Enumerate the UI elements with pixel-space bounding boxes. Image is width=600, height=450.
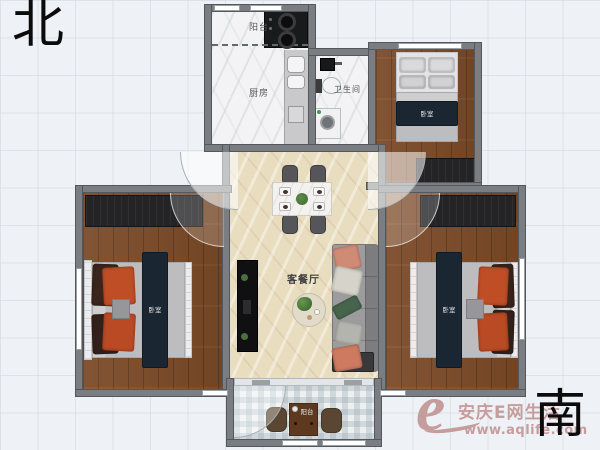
kitchen-cooktop-outline xyxy=(288,106,304,123)
wall xyxy=(308,48,376,56)
window xyxy=(380,390,406,396)
bed-runner: 卧室 xyxy=(396,101,458,126)
bed-tray xyxy=(466,299,484,319)
wall xyxy=(474,42,482,190)
dining-chair xyxy=(310,214,326,234)
table-plant xyxy=(296,193,308,205)
compass-north-label: 北 xyxy=(12,0,64,52)
coffee-table-cup xyxy=(314,309,320,315)
dinner-plate xyxy=(313,202,325,211)
kitchen-sink xyxy=(287,75,305,89)
console-plant xyxy=(241,333,248,340)
room-label-bathroom: 卫生间 xyxy=(334,84,361,95)
room-label-bedroom-west: 卧室 xyxy=(149,305,162,314)
wall xyxy=(374,378,382,447)
bed-headboard xyxy=(84,260,92,360)
bed-pillow xyxy=(428,75,455,89)
room-label-balcony-north: 阳台 xyxy=(249,20,269,33)
washing-machine-light xyxy=(317,110,321,114)
window xyxy=(250,5,282,11)
stove-burner xyxy=(278,13,296,31)
sofa-pillow-gray xyxy=(334,320,363,346)
floorplan-screenshot: { "compass": { "north": "北", "south": "南… xyxy=(0,0,600,450)
bathroom-sink xyxy=(320,58,335,71)
bed-pillow xyxy=(428,57,455,73)
bed-tray xyxy=(112,299,130,319)
wall xyxy=(204,4,212,152)
wall xyxy=(204,144,386,152)
bathroom-sink-arm xyxy=(335,62,342,65)
bed-footboard xyxy=(185,262,192,358)
balcony-table-knob xyxy=(310,422,313,425)
window xyxy=(202,390,228,396)
window xyxy=(322,440,366,446)
window xyxy=(214,5,240,11)
sofa-pillow-coral xyxy=(331,344,363,372)
washing-machine-door xyxy=(320,115,335,130)
dinner-plate xyxy=(279,187,291,196)
room-label-living-dining: 客餐厅 xyxy=(287,271,320,286)
stove-knob xyxy=(269,18,272,21)
window xyxy=(398,43,462,49)
wall xyxy=(308,4,316,152)
room-label-bedroom-southeast: 卧室 xyxy=(443,305,456,314)
coffee-table-cup xyxy=(307,315,312,320)
window xyxy=(282,440,318,446)
bed-footboard xyxy=(410,262,417,358)
balcony-table-knob xyxy=(294,422,297,425)
bed-runner: 卧室 xyxy=(142,252,168,368)
console-speaker xyxy=(243,300,251,314)
kitchen-sink xyxy=(287,56,305,73)
dinner-plate xyxy=(279,202,291,211)
bed-pillow xyxy=(399,75,426,89)
balcony-table-plate xyxy=(292,406,298,412)
window xyxy=(76,268,82,350)
dinner-plate xyxy=(313,187,325,196)
sliding-door-panel xyxy=(344,380,362,385)
window xyxy=(519,258,525,340)
bed-runner: 卧室 xyxy=(436,252,462,368)
sofa-pillow-beige xyxy=(331,265,364,296)
stove-burner xyxy=(278,31,296,49)
room-label-bedroom-northeast: 卧室 xyxy=(421,109,434,118)
room-label-kitchen: 厨房 xyxy=(249,86,269,99)
bed-pillow xyxy=(399,57,426,73)
room-label-balcony-south: 阳台 xyxy=(301,407,314,416)
console-plant xyxy=(241,274,248,281)
wall xyxy=(368,42,376,152)
sliding-door-panel xyxy=(252,380,270,385)
stove-knob xyxy=(269,27,272,30)
balcony-chair xyxy=(321,408,342,433)
compass-south-label: 南 xyxy=(534,390,586,442)
wall xyxy=(226,378,234,447)
dining-chair xyxy=(282,214,298,234)
